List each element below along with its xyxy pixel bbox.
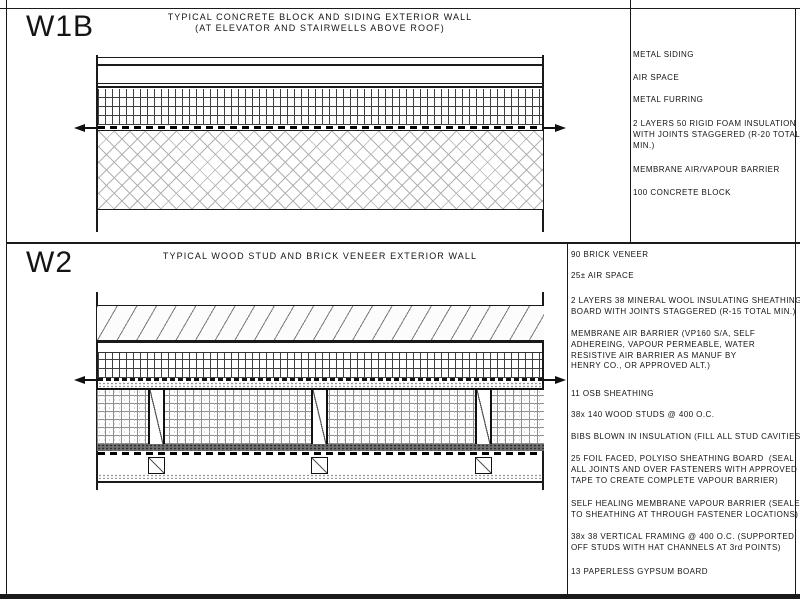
w2-vertical-framing-2 [311, 457, 328, 474]
w2-label-osb-sheathing: 11 OSB SHEATHING [571, 389, 654, 400]
w1b-concrete-block [97, 130, 544, 210]
w2-label-polyiso-board: 25 FOIL FACED, POLYISO SHEATHING BOARD (… [571, 454, 797, 486]
w2-self-healing-vapour-barrier [98, 452, 542, 455]
w2-label-mineral-wool: 2 LAYERS 38 MINERAL WOOL INSULATING SHEA… [571, 296, 800, 318]
w2-wood-stud-3 [475, 390, 492, 444]
w2-membrane-arrow-left-icon [74, 376, 97, 384]
arrowhead-right-icon [555, 376, 566, 384]
w1b-label-air-space: AIR SPACE [633, 73, 679, 84]
w2-vertical-framing-1 [148, 457, 165, 474]
w2-label-self-healing-membrane: SELF HEALING MEMBRANE VAPOUR BARRIER (SE… [571, 499, 800, 521]
arrow-tail [84, 127, 97, 129]
w1b-metal-siding-top-line [97, 57, 543, 58]
arrow-tail [84, 379, 97, 381]
w1b-membrane-arrow-left-icon [74, 124, 97, 132]
sheet-bottom-border [0, 594, 800, 599]
w2-label-vertical-framing: 38x 38 VERTICAL FRAMING @ 400 O.C. (SUPP… [571, 532, 794, 554]
w2-brick-veneer [97, 305, 544, 341]
w1b-label-rigid-foam: 2 LAYERS 50 RIGID FOAM INSULATION WITH J… [633, 119, 800, 151]
w2-label-bibs-insulation: BIBS BLOWN IN INSULATION (FILL ALL STUD … [571, 432, 800, 443]
w2-label-membrane-air-barrier: MEMBRANE AIR BARRIER (VP160 S/A, SELF AD… [571, 329, 755, 372]
w2-wood-stud-2 [311, 390, 328, 444]
arrowhead-right-icon [555, 124, 566, 132]
panel-id-w1b: W1B [26, 10, 94, 44]
w1b-membrane-arrow-right-icon [543, 124, 566, 132]
w1b-metal-furring-line-2 [97, 86, 543, 88]
arrow-tail [543, 379, 556, 381]
w2-wood-stud-1 [148, 390, 165, 444]
w1b-label-metal-furring: METAL FURRING [633, 95, 703, 106]
panel-divider [6, 242, 800, 244]
w1b-title-line2: (AT ELEVATOR AND STAIRWELLS ABOVE ROOF) [100, 23, 540, 33]
w2-label-wood-studs: 38x 140 WOOD STUDS @ 400 O.C. [571, 410, 714, 421]
w1b-title-line1: TYPICAL CONCRETE BLOCK AND SIDING EXTERI… [100, 12, 540, 22]
panel-id-w2: W2 [26, 246, 73, 280]
w2-vertical-framing-3 [475, 457, 492, 474]
w1b-label-column-divider [630, 0, 631, 242]
w2-brick-veneer-bottom-line [97, 340, 544, 343]
w2-label-column-divider [567, 244, 568, 595]
w2-title-line1: TYPICAL WOOD STUD AND BRICK VENEER EXTER… [100, 251, 540, 261]
w1b-label-metal-siding: METAL SIDING [633, 50, 694, 61]
w2-label-gypsum-board: 13 PAPERLESS GYPSUM BOARD [571, 567, 708, 578]
w2-gypsum-board [98, 474, 542, 479]
w2-membrane-air-barrier [98, 378, 542, 381]
w2-label-air-space: 25± AIR SPACE [571, 271, 634, 282]
drawing-sheet: W1B TYPICAL CONCRETE BLOCK AND SIDING EX… [0, 0, 800, 602]
w1b-label-membrane: MEMBRANE AIR/VAPOUR BARRIER [633, 165, 780, 176]
w2-label-brick-veneer: 90 BRICK VENEER [571, 250, 648, 261]
sheet-left-border [6, 0, 7, 596]
arrow-tail [543, 127, 556, 129]
w1b-label-concrete-block: 100 CONCRETE BLOCK [633, 188, 731, 199]
sheet-top-border [0, 8, 800, 9]
w1b-rigid-foam-insulation [98, 89, 542, 125]
w2-polyiso-sheathing-board [97, 444, 544, 451]
w2-membrane-arrow-right-icon [543, 376, 566, 384]
w1b-membrane-air-vapour-barrier [98, 126, 542, 129]
w2-wall-bottom-line [97, 481, 544, 483]
w1b-metal-siding-bottom-line [97, 64, 543, 66]
w1b-metal-furring-line-1 [97, 83, 543, 84]
w2-mineral-wool-sheathing [98, 352, 542, 378]
